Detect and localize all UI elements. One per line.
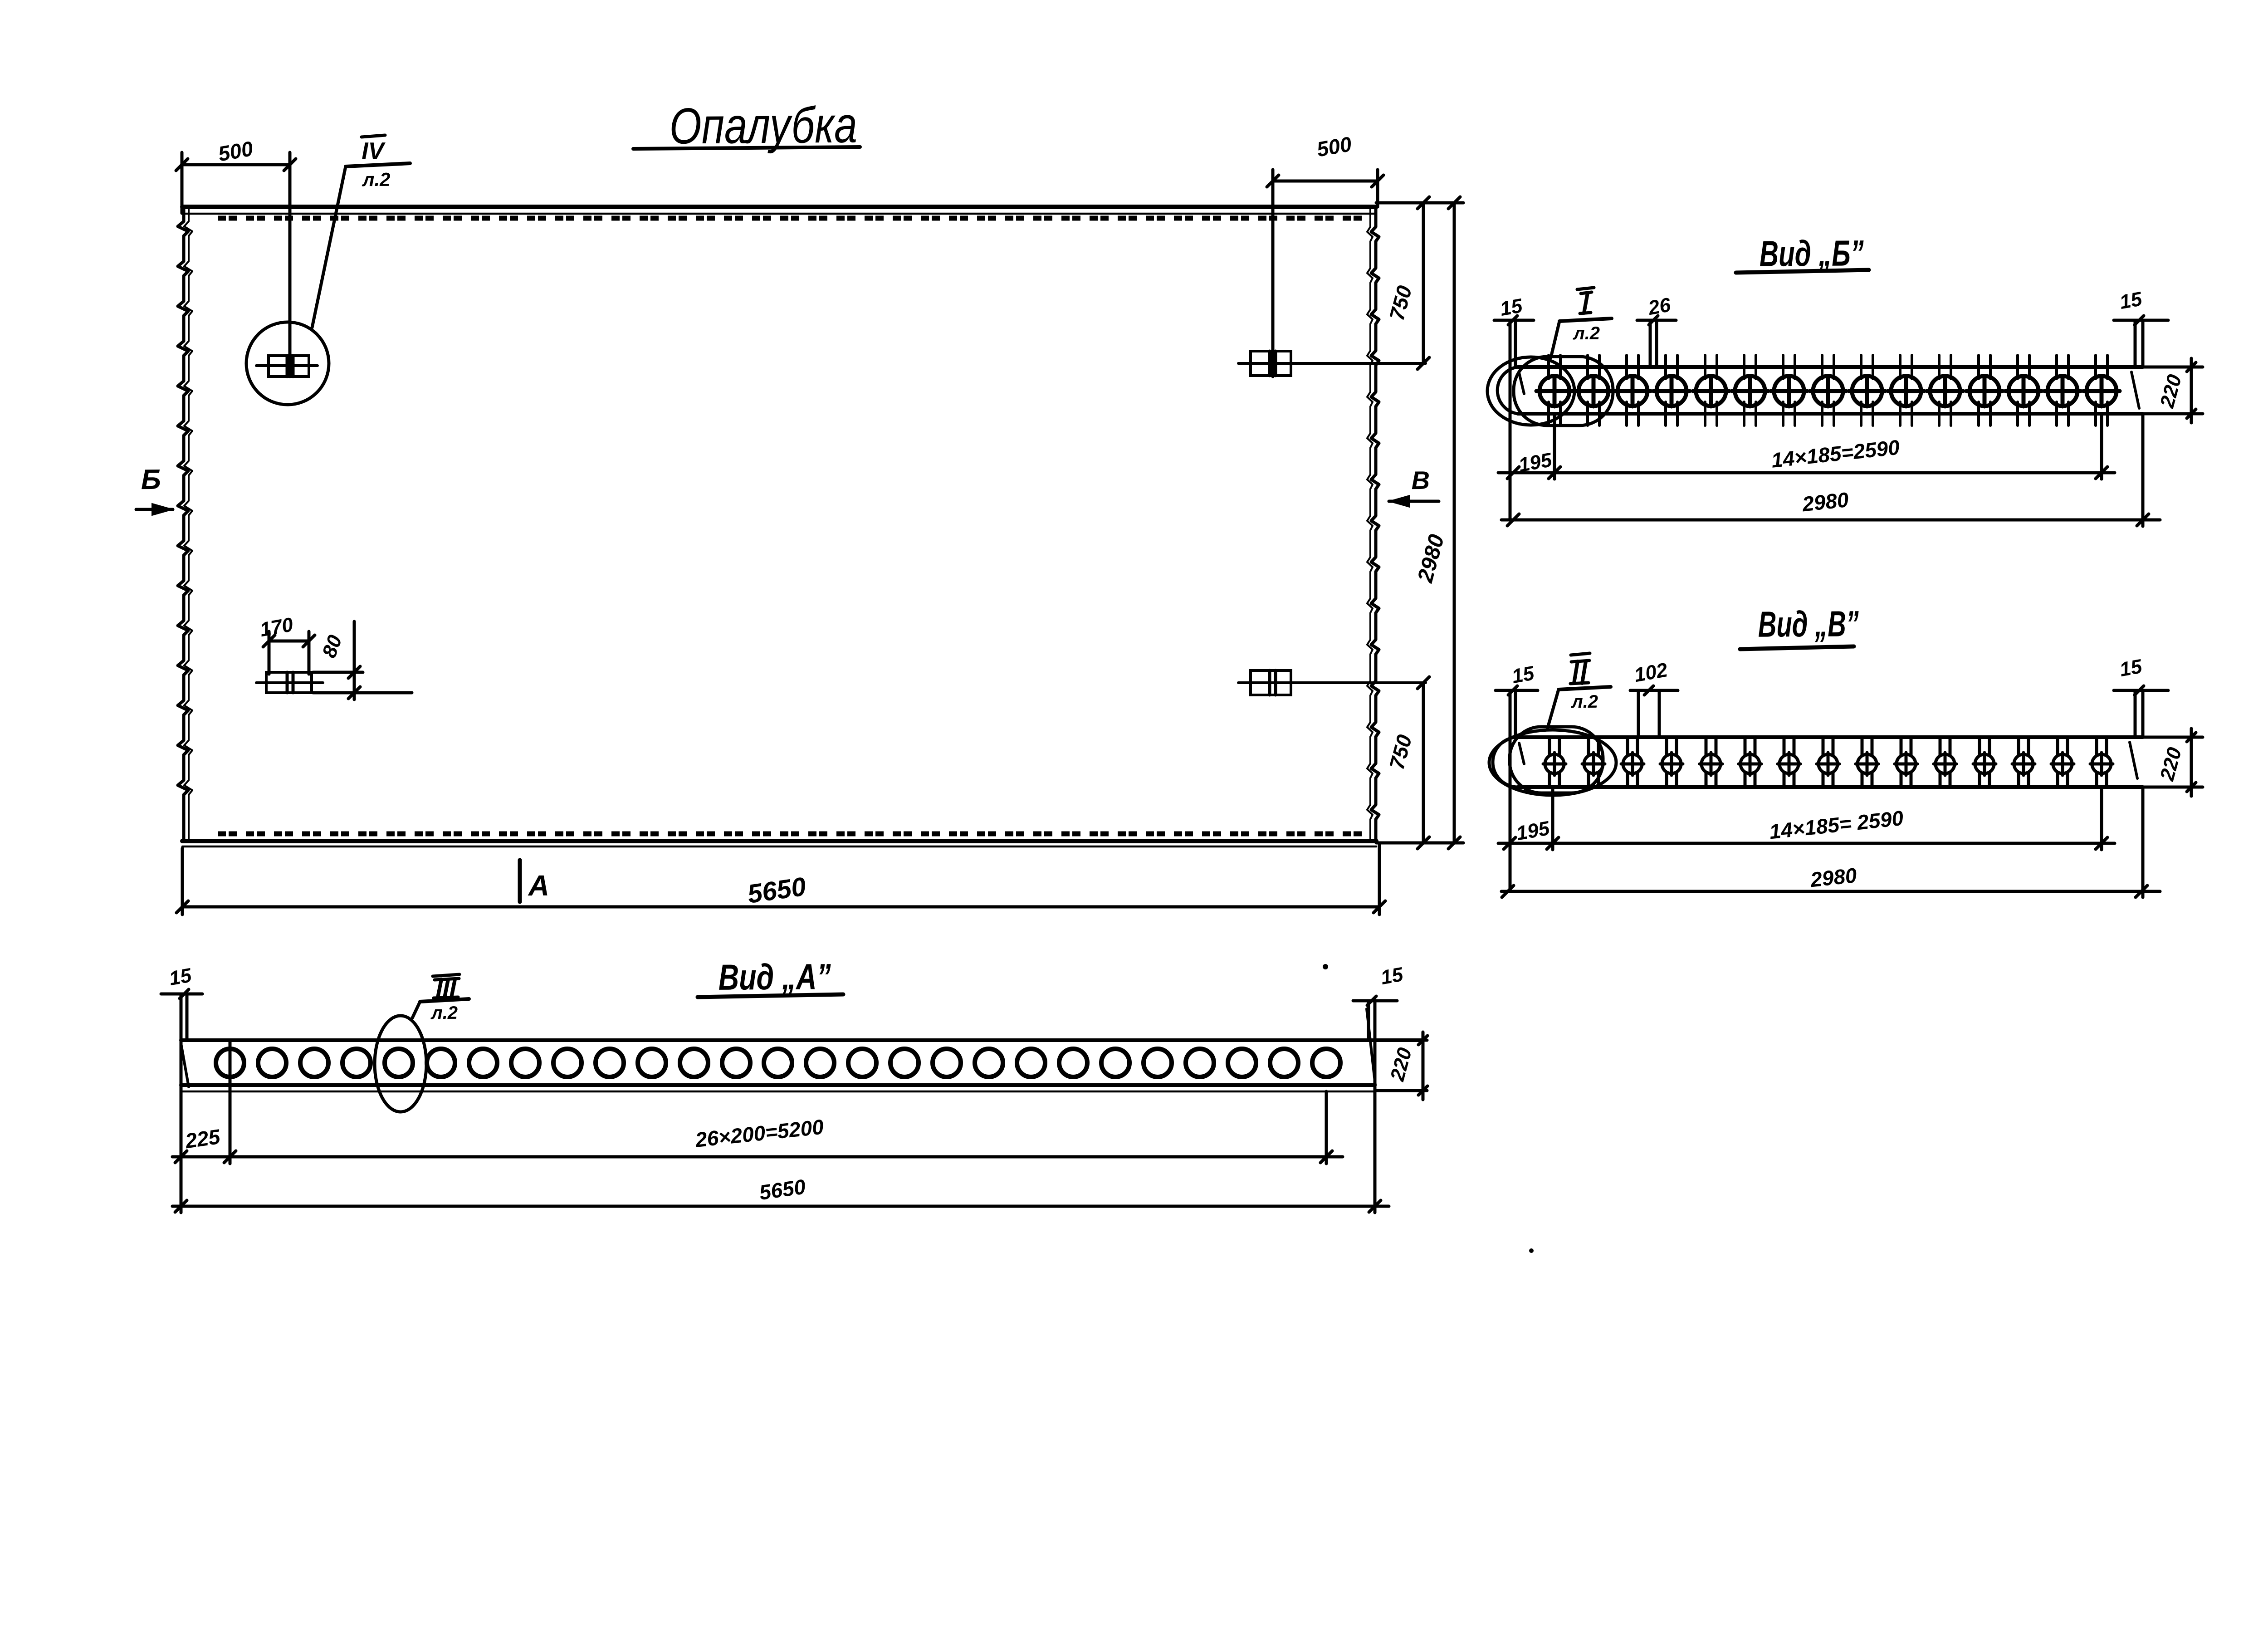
svg-text:15: 15 [2118, 655, 2144, 681]
svg-text:15: 15 [1498, 294, 1524, 320]
svg-text:Вид „Б”: Вид „Б” [1760, 233, 1864, 274]
svg-text:IV: IV [362, 138, 386, 164]
svg-text:л.2: л.2 [1573, 323, 1600, 343]
svg-text:15: 15 [167, 964, 193, 990]
svg-text:л.2: л.2 [362, 169, 390, 190]
svg-text:В: В [1411, 466, 1430, 494]
svg-text:л.2: л.2 [1571, 692, 1598, 712]
svg-text:26: 26 [1646, 294, 1672, 319]
svg-text:л.2: л.2 [430, 1003, 458, 1023]
svg-text:Б: Б [141, 464, 161, 495]
svg-text:А: А [527, 869, 549, 902]
svg-text:225: 225 [183, 1125, 222, 1153]
svg-text:Вид „В”: Вид „В” [1758, 603, 1859, 645]
svg-text:2980: 2980 [1801, 488, 1850, 516]
svg-text:2980: 2980 [1809, 863, 1858, 892]
svg-text:15: 15 [1379, 963, 1405, 989]
svg-text:15: 15 [1510, 662, 1536, 688]
svg-text:Вид „А”: Вид „А” [719, 956, 831, 998]
svg-text:15: 15 [2118, 288, 2144, 313]
